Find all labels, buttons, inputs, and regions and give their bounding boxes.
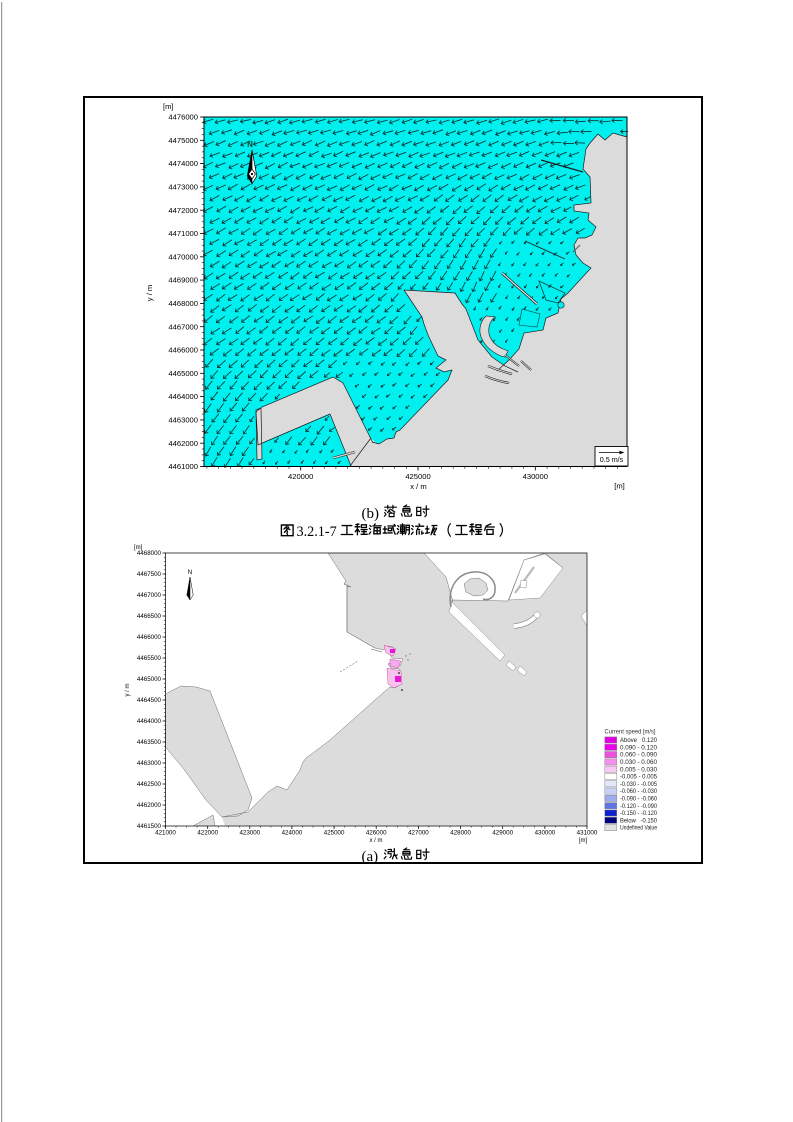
- svg-text:4470000: 4470000: [168, 252, 198, 261]
- svg-text:425000: 425000: [405, 472, 430, 481]
- svg-text:4466500: 4466500: [137, 613, 162, 620]
- svg-text:4462500: 4462500: [137, 781, 162, 788]
- svg-text:426000: 426000: [366, 830, 387, 837]
- svg-text:4471000: 4471000: [168, 229, 198, 238]
- svg-text:0.060 - 0.090: 0.060 - 0.090: [620, 753, 658, 759]
- svg-text:-0.120 - -0.090: -0.120 - -0.090: [620, 804, 658, 810]
- svg-text:4472000: 4472000: [168, 206, 198, 215]
- svg-text:423000: 423000: [239, 830, 260, 837]
- svg-text:4473000: 4473000: [168, 183, 198, 192]
- svg-text:4465000: 4465000: [168, 369, 198, 378]
- svg-text:430000: 430000: [535, 830, 556, 837]
- svg-text:Current speed [m/s]: Current speed [m/s]: [605, 729, 656, 736]
- svg-text:4467500: 4467500: [137, 571, 162, 578]
- svg-text:Undefined Value: Undefined Value: [620, 826, 658, 832]
- svg-text:425000: 425000: [324, 830, 345, 837]
- svg-text:(b): (b): [362, 506, 380, 522]
- svg-text:4476000: 4476000: [168, 113, 198, 122]
- svg-text:4464000: 4464000: [137, 718, 162, 725]
- svg-text:4464500: 4464500: [137, 697, 162, 704]
- svg-text:-0.030 - -0.005: -0.030 - -0.005: [620, 782, 658, 788]
- svg-text:428000: 428000: [450, 830, 471, 837]
- svg-text:0.030 - 0.060: 0.030 - 0.060: [620, 760, 658, 766]
- svg-text:-0.005 - 0.005: -0.005 - 0.005: [620, 775, 658, 781]
- svg-text:4475000: 4475000: [168, 136, 198, 145]
- svg-text:0.090 - 0.120: 0.090 - 0.120: [620, 745, 658, 751]
- svg-text:x / m: x / m: [370, 838, 383, 844]
- svg-text:4467000: 4467000: [168, 322, 198, 331]
- svg-text:-0.150 - -0.120: -0.150 - -0.120: [620, 811, 658, 817]
- svg-text:0.005 - 0.030: 0.005 - 0.030: [620, 767, 658, 773]
- svg-text:-0.090 - -0.060: -0.090 - -0.060: [620, 797, 658, 803]
- svg-text:427000: 427000: [408, 830, 429, 837]
- svg-text:4468000: 4468000: [168, 299, 198, 308]
- svg-text:y / m: y / m: [145, 285, 154, 301]
- svg-text:4466000: 4466000: [137, 634, 162, 641]
- svg-text:4461000: 4461000: [168, 462, 198, 471]
- svg-text:4463000: 4463000: [137, 760, 162, 767]
- svg-text:Below -0.150: Below -0.150: [620, 818, 658, 824]
- svg-text:4462000: 4462000: [137, 802, 162, 809]
- svg-text:4464000: 4464000: [168, 392, 198, 401]
- svg-text:[m]: [m]: [134, 545, 143, 551]
- svg-text:430000: 430000: [523, 472, 548, 481]
- svg-text:[m]: [m]: [614, 482, 625, 491]
- svg-text:4465000: 4465000: [137, 676, 162, 683]
- svg-text:Above 0.120: Above 0.120: [620, 738, 658, 744]
- svg-text:4463000: 4463000: [168, 416, 198, 425]
- svg-text:4474000: 4474000: [168, 159, 198, 168]
- svg-text:4467000: 4467000: [137, 592, 162, 599]
- svg-text:4469000: 4469000: [168, 276, 198, 285]
- svg-text:y / m: y / m: [125, 683, 131, 696]
- svg-text:x / m: x / m: [410, 482, 426, 491]
- svg-text:424000: 424000: [282, 830, 303, 837]
- svg-text:N: N: [188, 569, 192, 576]
- svg-text:3.2.1-7: 3.2.1-7: [297, 524, 337, 540]
- svg-text:4465500: 4465500: [137, 655, 162, 662]
- svg-text:4463500: 4463500: [137, 739, 162, 746]
- svg-text:N: N: [247, 140, 253, 149]
- svg-text:4466000: 4466000: [168, 346, 198, 355]
- svg-text:4468000: 4468000: [137, 550, 162, 557]
- svg-text:[m]: [m]: [579, 838, 588, 844]
- svg-text:429000: 429000: [492, 830, 513, 837]
- svg-text:420000: 420000: [288, 472, 313, 481]
- svg-text:421000: 421000: [155, 830, 176, 837]
- svg-text:(a): (a): [362, 849, 379, 865]
- svg-text:0.5 m/s: 0.5 m/s: [600, 455, 624, 464]
- svg-text:4462000: 4462000: [168, 439, 198, 448]
- svg-text:[m]: [m]: [163, 102, 174, 111]
- svg-text:-0.060 - -0.030: -0.060 - -0.030: [620, 789, 658, 795]
- svg-text:431000: 431000: [577, 830, 598, 837]
- svg-text:422000: 422000: [197, 830, 218, 837]
